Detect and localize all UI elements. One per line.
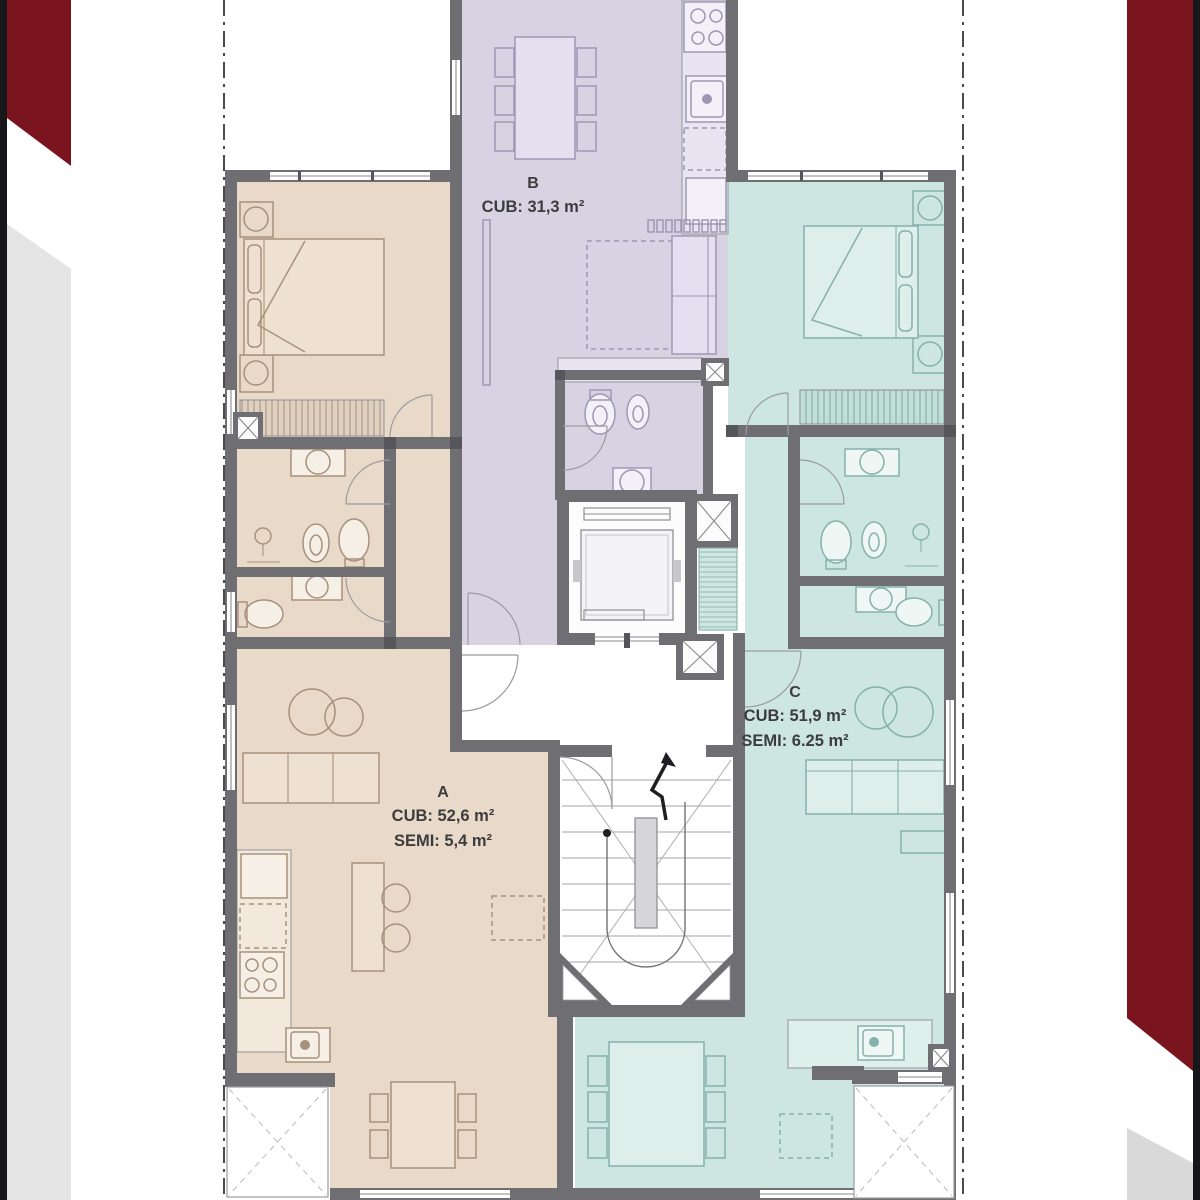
bed-icon	[804, 226, 918, 338]
sofa-icon	[243, 753, 379, 803]
edge-decoration-right	[1127, 0, 1200, 1200]
stairs	[560, 752, 733, 1005]
island-icon	[352, 863, 384, 971]
unit-a-letter: A	[392, 782, 495, 804]
dining-table-icon	[515, 37, 575, 159]
unit-a-label: A CUB: 52,6 m² SEMI: 5,4 m²	[392, 782, 495, 854]
unit-c-letter: C	[741, 682, 848, 704]
balcony-unit-c	[854, 1086, 954, 1198]
unit-c-area-semi: SEMI: 6.25 m²	[741, 729, 848, 754]
unit-b-area-cub: CUB: 31,3 m²	[482, 195, 585, 220]
floor-plan-drawing	[0, 0, 1200, 1200]
bed-icon	[244, 239, 384, 355]
sofa-icon	[672, 236, 716, 354]
edge-decoration-left	[0, 0, 71, 1200]
dining-table-icon	[391, 1082, 455, 1168]
unit-c-area-cub: CUB: 51,9 m²	[741, 704, 848, 729]
sofa-icon	[806, 760, 944, 814]
duct	[699, 548, 737, 630]
closet-unit-c	[800, 390, 946, 424]
unit-a-area-cub: CUB: 52,6 m²	[392, 804, 495, 829]
dining-table-icon	[609, 1042, 704, 1166]
balcony-unit-a	[227, 1087, 328, 1197]
unit-b-label: B CUB: 31,3 m²	[482, 173, 585, 220]
unit-b-letter: B	[482, 173, 585, 195]
floor-plan-page: A CUB: 52,6 m² SEMI: 5,4 m² B CUB: 31,3 …	[0, 0, 1200, 1200]
unit-a-area-semi: SEMI: 5,4 m²	[392, 829, 495, 854]
elevator	[569, 502, 685, 633]
unit-c-label: C CUB: 51,9 m² SEMI: 6.25 m²	[741, 682, 848, 754]
